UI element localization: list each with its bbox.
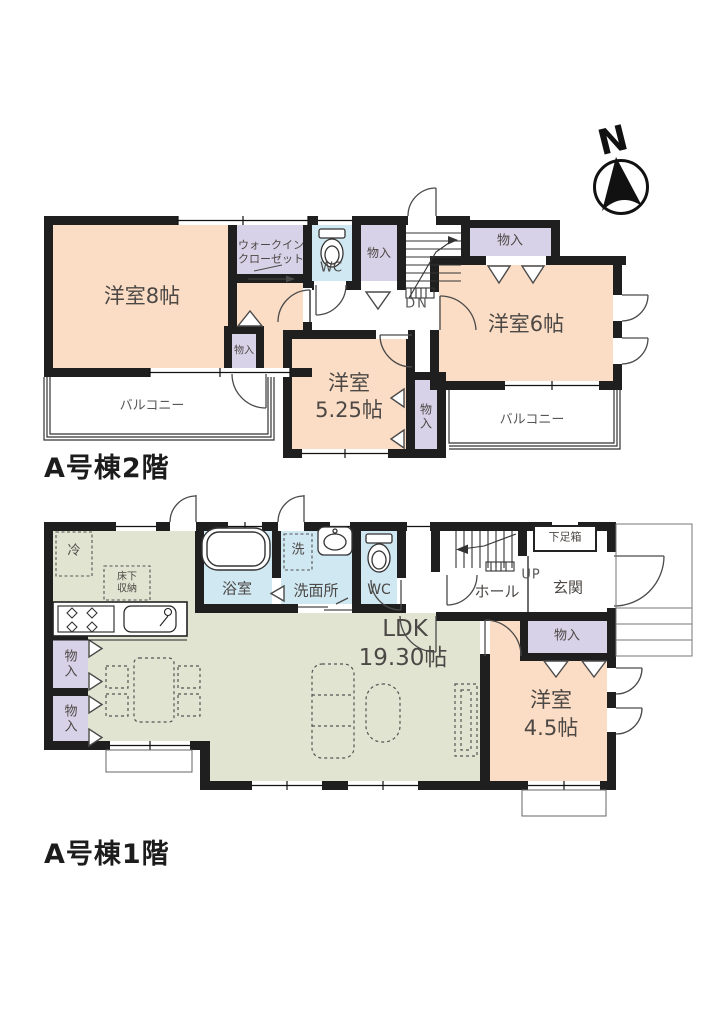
entry-porch bbox=[616, 524, 692, 656]
floorplan-page: { "compass": { "north": "N" }, "floor2":… bbox=[0, 0, 724, 1024]
room8-label: 洋室8帖 bbox=[104, 284, 180, 308]
refrigerator-label: 冷 bbox=[67, 545, 80, 560]
room45-label-line2: 4.5帖 bbox=[524, 716, 578, 740]
stairs-down-label: DN bbox=[405, 298, 429, 313]
washroom-label: 洗面所 bbox=[293, 582, 338, 599]
floor2-title: A号棟2階 bbox=[44, 446, 170, 485]
compass-icon bbox=[595, 157, 648, 214]
storage-label-entrance: 物入 bbox=[554, 630, 580, 645]
wc2f-label: WC bbox=[320, 262, 342, 277]
storage-label-left1: 物入 bbox=[60, 649, 79, 679]
toilet-icon-1f bbox=[366, 534, 392, 572]
room6-label: 洋室6帖 bbox=[488, 312, 564, 336]
storage-label-mid: 物入 bbox=[234, 345, 254, 357]
wic-label-line2: クローゼット bbox=[238, 254, 304, 267]
storage-label-525: 物入 bbox=[418, 403, 435, 431]
stairs-up-label: UP bbox=[521, 569, 540, 584]
balcony-left-label: バルコニー bbox=[120, 400, 185, 415]
ldk-label-line2: 19.30帖 bbox=[359, 645, 448, 671]
balcony-right-label: バルコニー bbox=[500, 414, 565, 429]
ldk-label-line1: LDK bbox=[382, 616, 428, 642]
vanity-sink-icon bbox=[318, 527, 352, 555]
room45-label-line1: 洋室 bbox=[530, 688, 572, 712]
storage-label-left2: 物入 bbox=[60, 704, 79, 734]
underfloor-label-line2: 収納 bbox=[117, 583, 137, 595]
entrance-label: 玄関 bbox=[553, 579, 583, 596]
washer-label: 洗 bbox=[291, 544, 304, 559]
storage-label-top: 物入 bbox=[497, 235, 523, 250]
room525-label-line1: 洋室 bbox=[328, 371, 370, 395]
wic-label-line1: ウォークイン bbox=[238, 240, 304, 253]
bathtub-icon bbox=[202, 528, 270, 570]
kitchen-counter-icon bbox=[53, 602, 187, 640]
floor1-stairs bbox=[456, 531, 516, 571]
underfloor-label-line1: 床下 bbox=[117, 571, 137, 583]
room525-label-line2: 5.25帖 bbox=[315, 398, 383, 422]
shoe-box-label: 下足箱 bbox=[549, 532, 582, 545]
storage-label-wc-side: 物入 bbox=[367, 247, 391, 261]
bath-label: 浴室 bbox=[222, 580, 252, 597]
hall-label: ホール bbox=[474, 583, 519, 600]
wc1f-label: WC bbox=[367, 582, 391, 598]
floor1-title: A号棟1階 bbox=[44, 832, 170, 871]
